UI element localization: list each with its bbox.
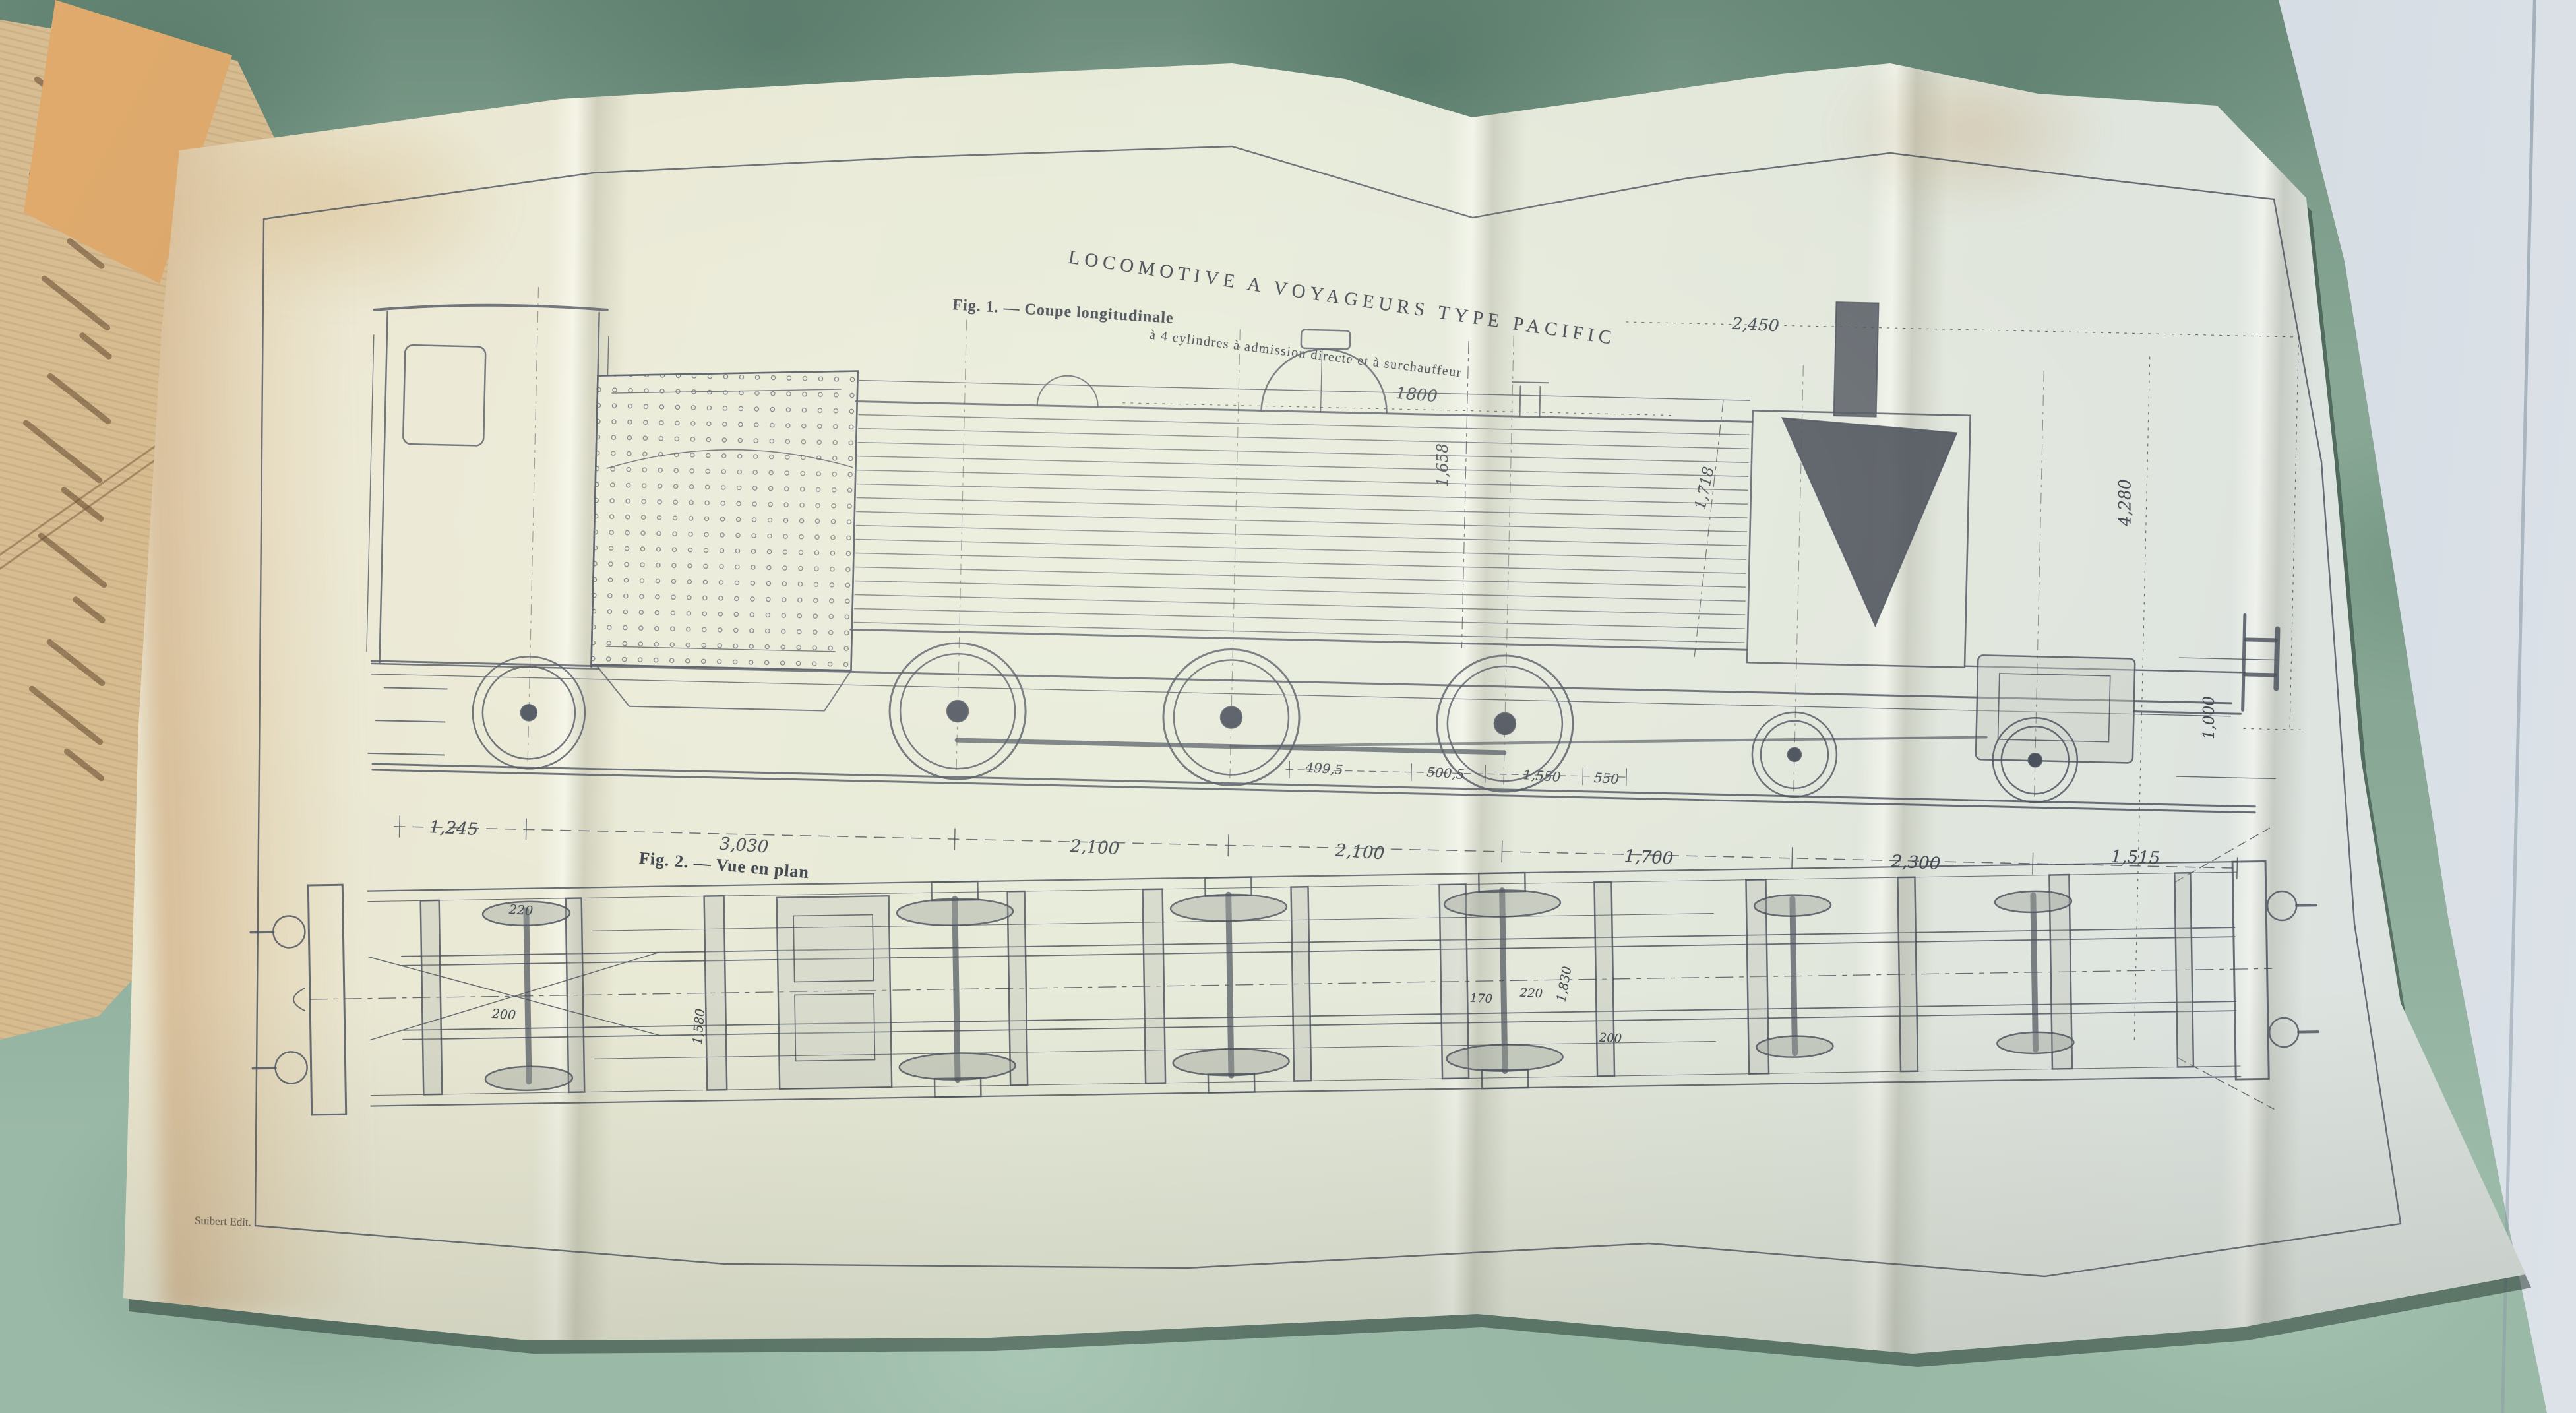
engraver-credit: Suibert Edit. [195,1214,252,1230]
foldout-plate: LOCOMOTIVE A VOYAGEURS TYPE PACIFIC à 4 … [0,0,2576,1413]
dimension-label: 2,300 [1891,852,1941,874]
page-text-line [22,419,104,484]
dimension-label: 220 [508,902,534,918]
dimension-label: 3,030 [719,834,769,857]
dimension-label: 2,100 [1335,840,1385,863]
page-text-line [60,486,106,522]
dimension-label: 1,658 [1434,443,1452,487]
dimension-label: 550 [1593,770,1620,788]
dimension-label: 4,280 [2116,479,2135,526]
dimension-label: 1,550 [1523,767,1562,785]
page-text-line [46,372,112,425]
page-text-line [37,532,108,589]
page-text-line [63,747,106,782]
dimension-label: 499,5 [1305,759,1344,778]
dimension-label: 170 [1469,991,1492,1007]
photo-scene: LOCOMOTIVE A VOYAGEURS TYPE PACIFIC à 4 … [0,0,2576,1413]
page-text-line [72,595,107,624]
dimension-label: 200 [1599,1031,1622,1046]
engineering-drawing [0,0,2576,1413]
dimension-label: 1,000 [2201,696,2218,739]
page-text-line [78,331,113,360]
page-text-line [28,685,104,746]
dimension-label: 1800 [1395,383,1438,406]
dimension-label: 2,100 [1070,836,1120,859]
page-text-line [40,274,111,332]
dimension-label: 2,450 [1732,314,1780,336]
fig2-drawing [250,827,2319,1141]
page-text-line [46,638,106,687]
dimension-label: 1,245 [429,817,479,840]
dimension-label: 200 [491,1007,516,1022]
dimension-label: 500,5 [1426,764,1465,782]
dimension-label: 1,700 [1624,846,1674,869]
dimension-label: 220 [1519,986,1543,1001]
dimension-label: 1,515 [2110,847,2160,869]
